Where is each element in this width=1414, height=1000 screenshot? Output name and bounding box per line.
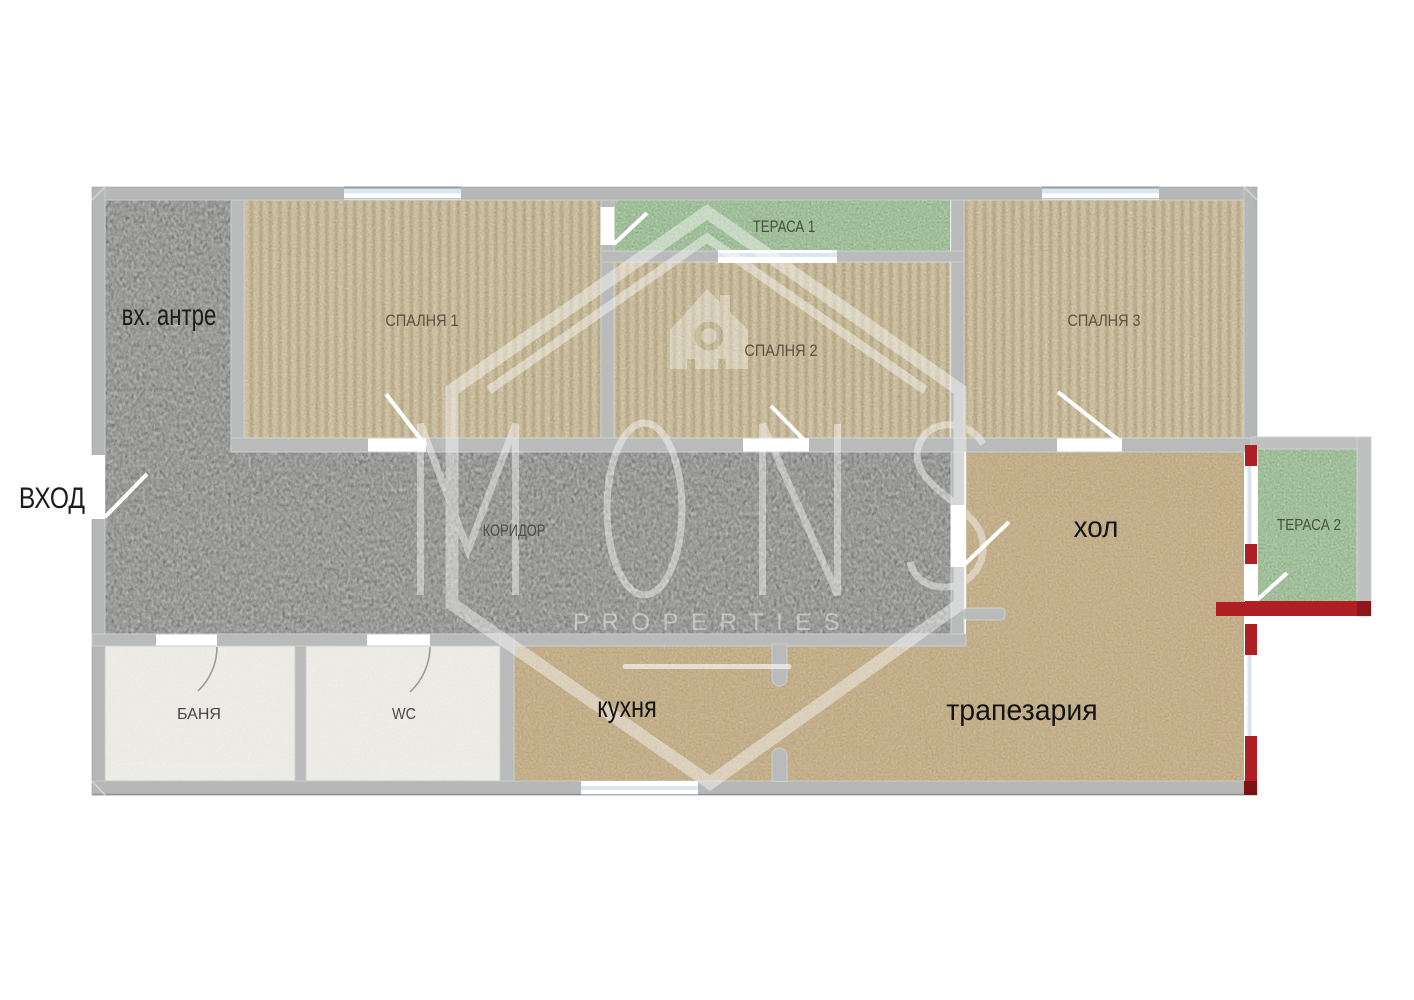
svg-text:трапезария: трапезария [946,694,1097,727]
svg-text:БАНЯ: БАНЯ [177,706,221,723]
svg-text:вх. антре: вх. антре [122,298,217,332]
svg-text:хол: хол [1074,511,1119,544]
svg-text:СПАЛНЯ 1: СПАЛНЯ 1 [385,312,458,330]
svg-text:КОРИДОР: КОРИДОР [483,521,546,540]
svg-text:кухня: кухня [597,690,656,723]
svg-text:PROPERTIES: PROPERTIES [573,609,852,636]
svg-text:ТЕРАСА 1: ТЕРАСА 1 [753,218,816,237]
svg-text:ВХОД: ВХОД [19,481,86,515]
svg-text:WC: WC [392,705,416,723]
svg-text:СПАЛНЯ 3: СПАЛНЯ 3 [1067,312,1140,330]
svg-text:СПАЛНЯ 2: СПАЛНЯ 2 [744,342,817,360]
svg-text:ТЕРАСА 2: ТЕРАСА 2 [1277,517,1341,534]
